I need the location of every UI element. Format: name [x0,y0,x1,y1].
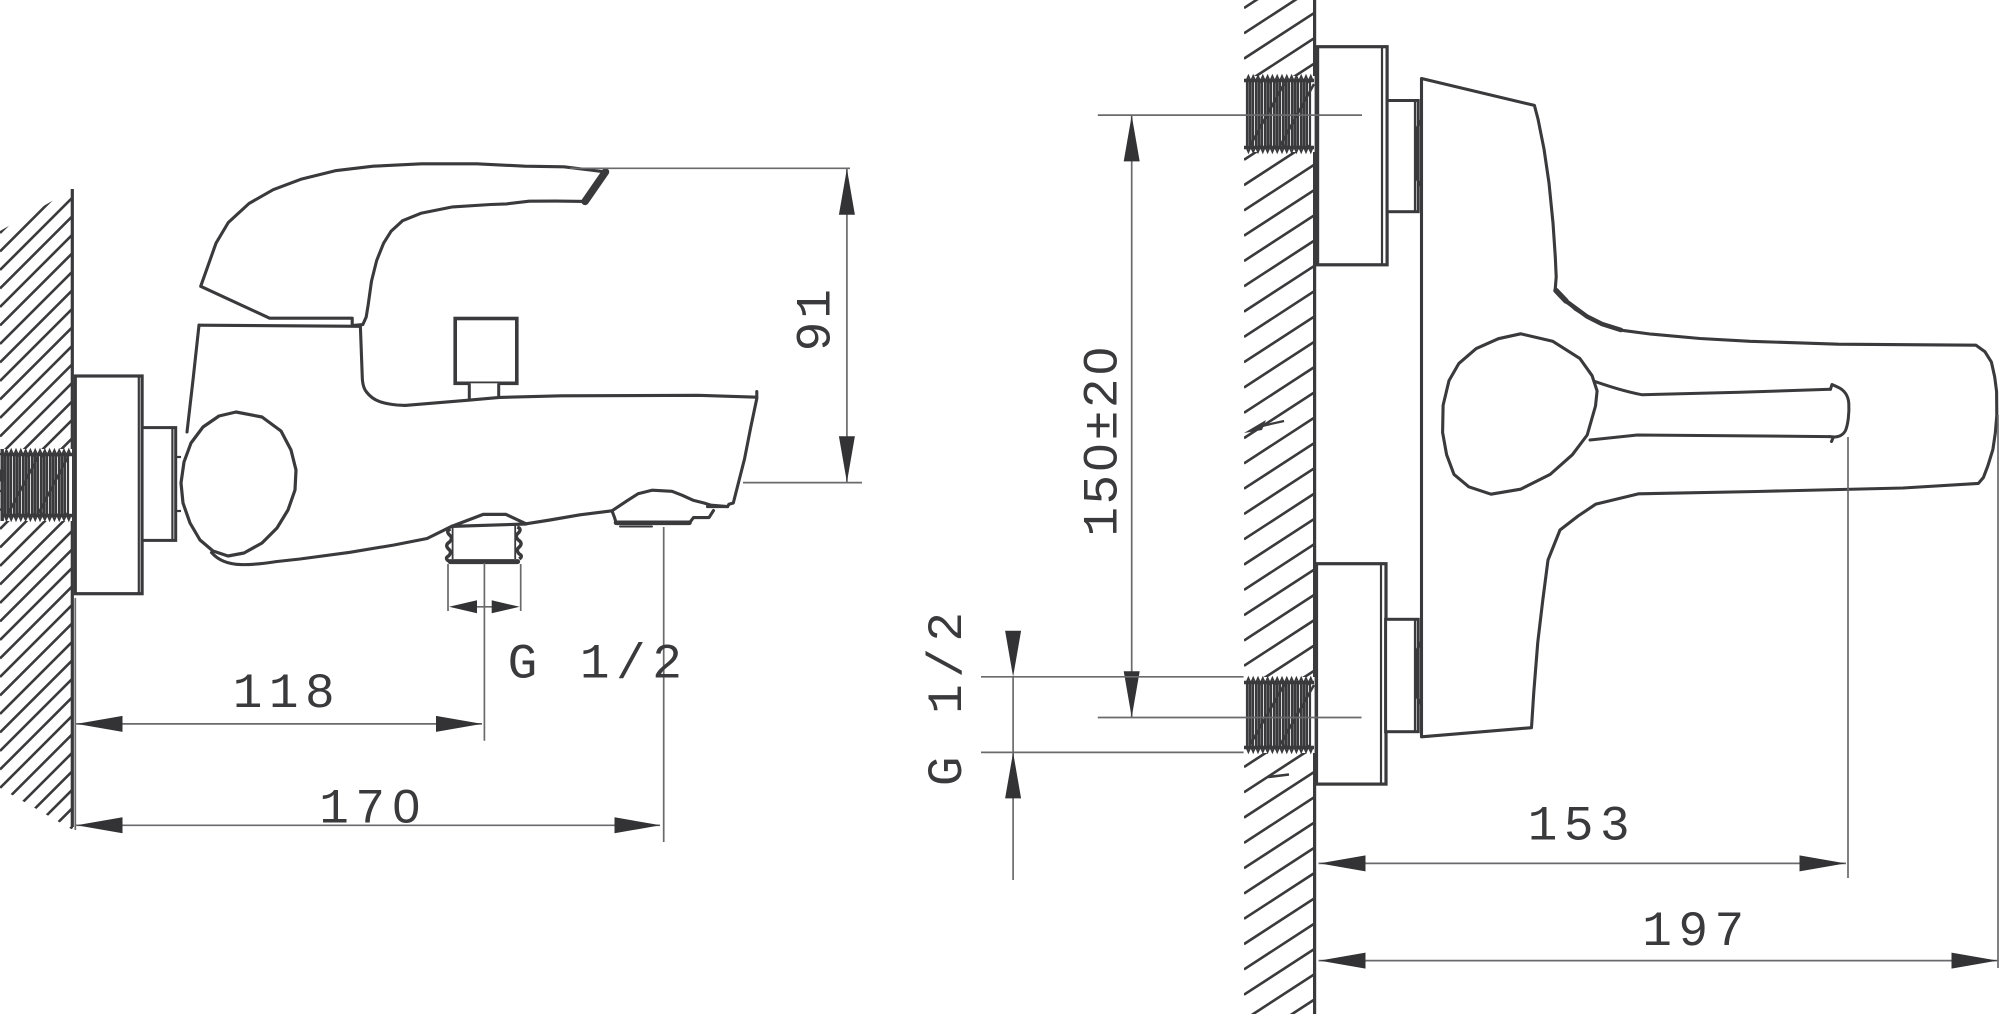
svg-text:91: 91 [789,286,845,351]
svg-text:150±20: 150±20 [1076,344,1132,537]
svg-text:197: 197 [1642,904,1750,960]
svg-text:153: 153 [1528,799,1636,855]
svg-text:G 1/2: G 1/2 [508,637,689,693]
svg-text:G 1/2: G 1/2 [920,605,976,786]
svg-text:118: 118 [233,666,341,722]
svg-text:170: 170 [319,782,427,838]
